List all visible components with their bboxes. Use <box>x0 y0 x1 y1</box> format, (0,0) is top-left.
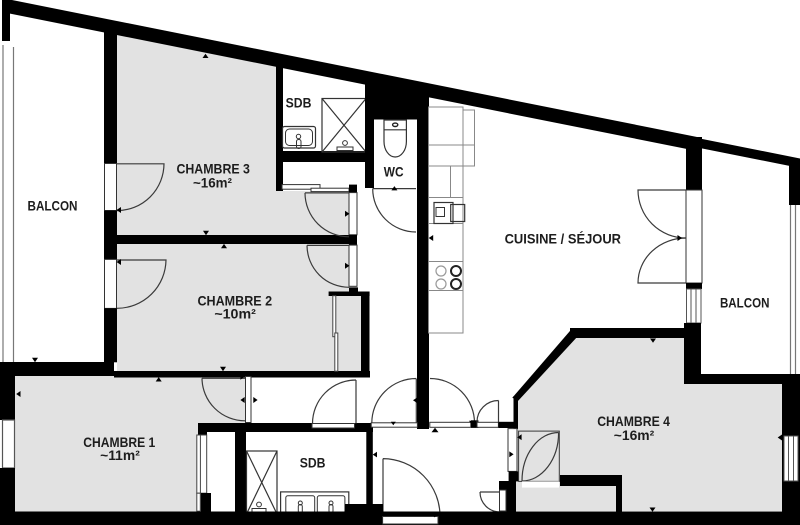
svg-text:WC: WC <box>384 164 404 180</box>
svg-text:SDB: SDB <box>286 95 312 111</box>
svg-text:BALCON: BALCON <box>28 198 78 214</box>
svg-text:~10m²: ~10m² <box>214 305 256 321</box>
svg-text:BALCON: BALCON <box>720 295 770 311</box>
svg-text:SDB: SDB <box>300 454 326 470</box>
svg-text:~16m²: ~16m² <box>614 427 655 443</box>
svg-text:~11m²: ~11m² <box>100 447 140 463</box>
svg-text:~16m²: ~16m² <box>193 174 232 190</box>
svg-text:CUISINE / SÉJOUR: CUISINE / SÉJOUR <box>505 231 621 247</box>
